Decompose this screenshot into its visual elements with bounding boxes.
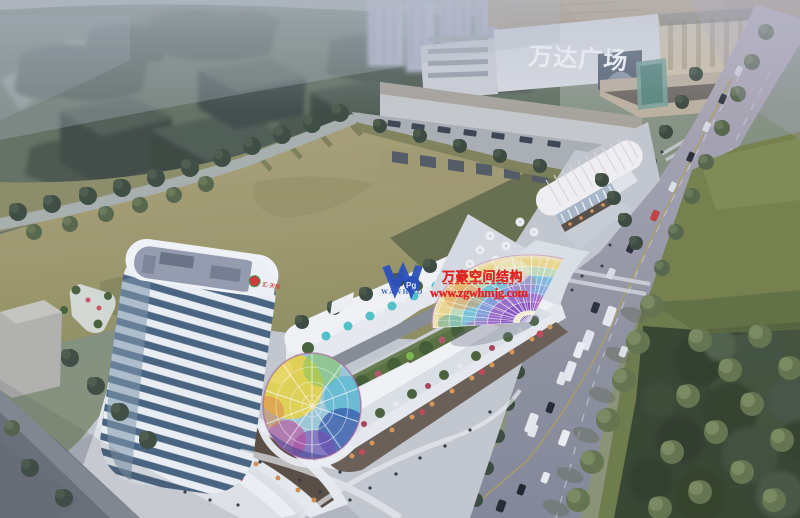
svg-text:WANHAO: WANHAO: [381, 288, 424, 296]
svg-text:www.zgwhmjg.com: www.zgwhmjg.com: [430, 286, 528, 300]
svg-text:万豪空间结构: 万豪空间结构: [441, 269, 523, 284]
